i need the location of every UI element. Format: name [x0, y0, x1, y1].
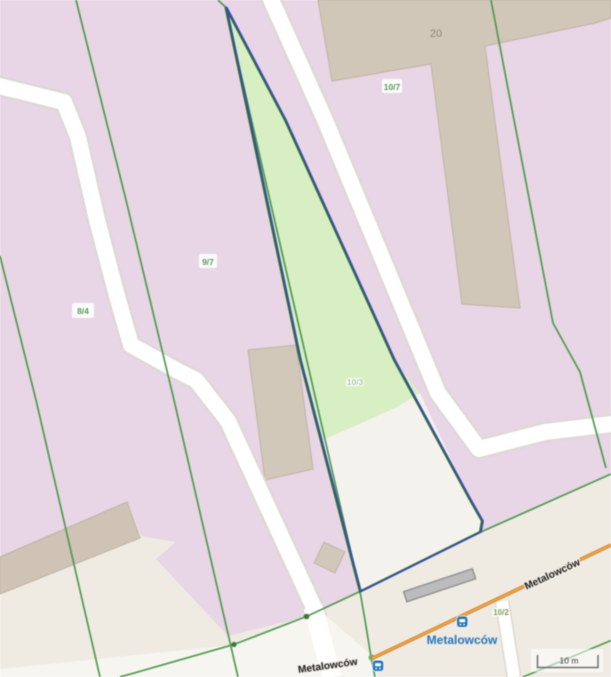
- svg-text:10 m: 10 m: [560, 656, 579, 666]
- svg-text:20: 20: [430, 28, 442, 40]
- svg-text:Metalowców: Metalowców: [427, 633, 498, 647]
- svg-text:8/4: 8/4: [77, 306, 89, 316]
- svg-text:10/7: 10/7: [384, 82, 401, 92]
- svg-text:9/7: 9/7: [202, 257, 214, 267]
- svg-text:10/2: 10/2: [493, 608, 509, 617]
- svg-text:10/3: 10/3: [347, 377, 364, 387]
